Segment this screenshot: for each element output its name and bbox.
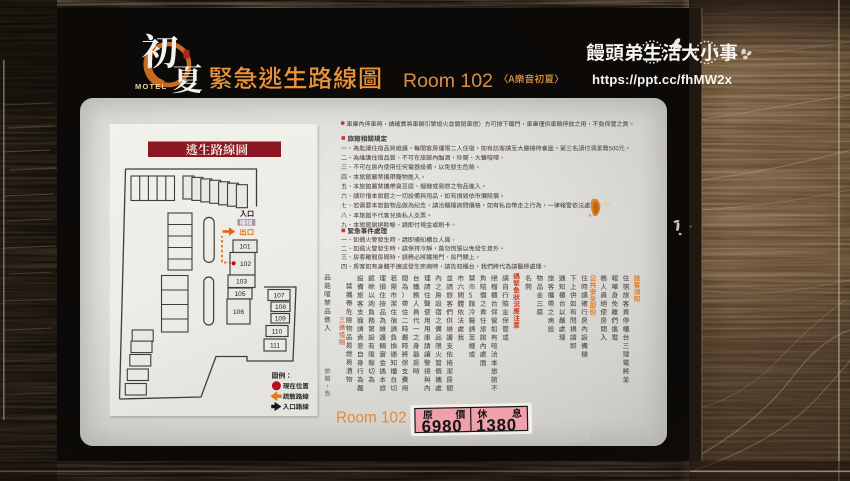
svg-text:103: 103: [236, 279, 247, 286]
svg-text:111: 111: [270, 342, 280, 349]
svg-text:102: 102: [240, 261, 251, 268]
svg-text:110: 110: [272, 328, 283, 335]
svg-text:Room 102: Room 102: [336, 410, 407, 427]
svg-text:6980: 6980: [421, 416, 462, 436]
svg-text:106: 106: [233, 309, 244, 316]
svg-text:1380: 1380: [476, 415, 517, 435]
svg-text:Room 102: Room 102: [403, 70, 493, 92]
svg-text:107: 107: [273, 292, 284, 299]
svg-text:109: 109: [275, 316, 286, 323]
svg-text:https://ppt.cc/fhMW2x: https://ppt.cc/fhMW2x: [592, 72, 733, 87]
svg-text:105: 105: [234, 291, 245, 298]
svg-text:MOTEL: MOTEL: [135, 82, 167, 91]
svg-text:101: 101: [239, 244, 250, 251]
svg-text:108: 108: [275, 304, 286, 311]
